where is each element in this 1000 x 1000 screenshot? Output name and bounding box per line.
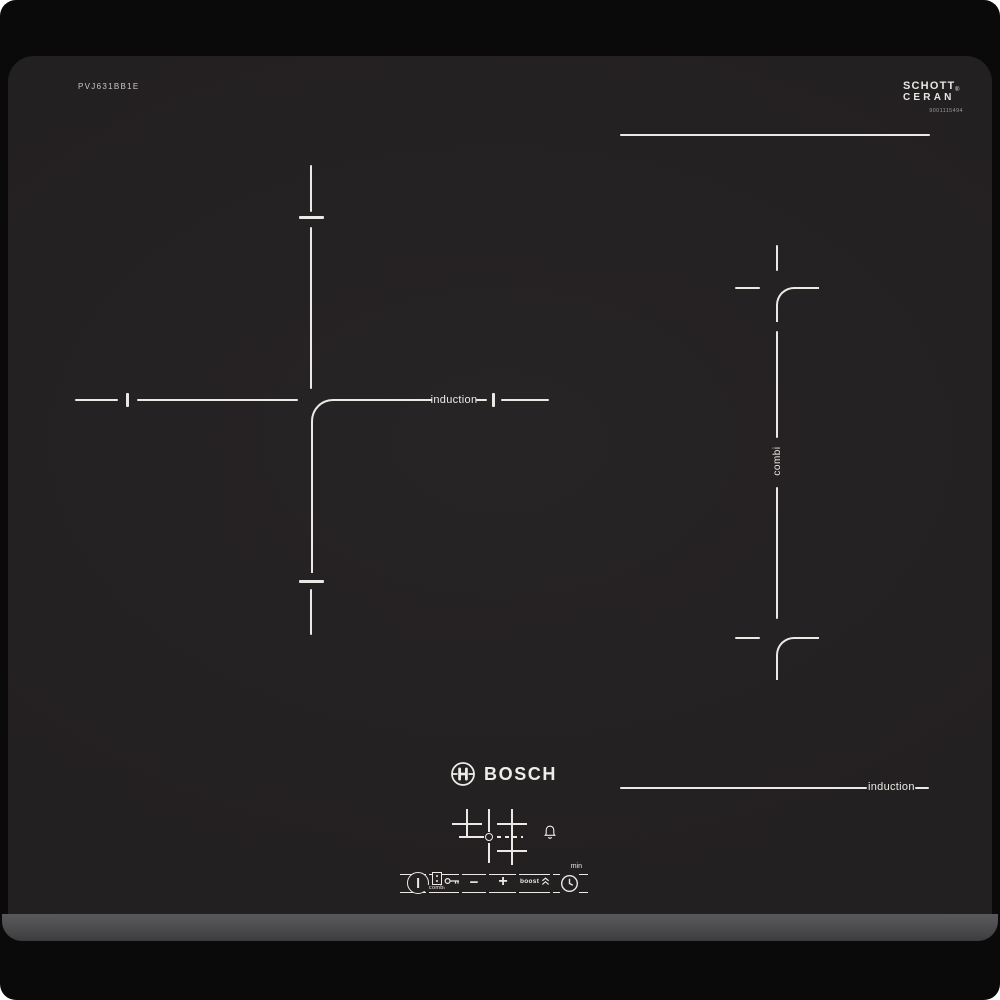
zone-diagram-divider-top xyxy=(488,809,490,832)
combi-zone-top-left-dash xyxy=(735,287,760,289)
boost-button[interactable]: boost xyxy=(518,876,552,886)
bosch-wordmark: BOSCH xyxy=(484,764,557,785)
glass-code: 9001115494 xyxy=(903,108,963,114)
left-zone-horizontal-left-end xyxy=(75,399,118,401)
zone-diagram-topright-cross-v xyxy=(511,809,513,838)
left-zone-label: induction xyxy=(430,394,478,406)
bottom-right-zone-line-end xyxy=(915,787,929,789)
combi-zone-top-tick xyxy=(776,245,778,271)
product-photo: PVJ631BB1E SCHOTT CERAN ® 9001115494 ind… xyxy=(0,0,1000,1000)
combi-zone-vertical-upper xyxy=(776,331,778,438)
child-lock-key-button[interactable] xyxy=(444,876,461,887)
zone-diagram-dashed-line xyxy=(497,836,523,838)
left-zone-vertical-top xyxy=(310,165,312,212)
left-zone-horizontal-right-short xyxy=(476,399,487,401)
timer-button[interactable] xyxy=(560,874,579,893)
left-zone-bottom-tick xyxy=(299,580,324,583)
top-right-zone-line xyxy=(620,134,930,136)
plus-button[interactable]: + xyxy=(492,873,514,891)
minus-button[interactable]: − xyxy=(463,874,485,891)
combi-zone-dot-icon xyxy=(436,880,438,882)
zone-diagram-topleft-cross-v xyxy=(466,809,468,838)
bosch-armature-icon xyxy=(450,761,476,787)
bosch-logo: BOSCH xyxy=(450,761,557,787)
zone-diagram-bottomright-cross-v xyxy=(511,838,513,865)
left-zone-right-tick xyxy=(492,393,495,407)
left-zone-left-tick xyxy=(126,393,129,407)
left-zone-horizontal-left xyxy=(137,399,298,401)
power-icon xyxy=(417,878,419,888)
bottom-right-zone-label: induction xyxy=(868,781,914,793)
left-zone-vertical-upper xyxy=(310,227,312,389)
combi-zone-top-corner xyxy=(776,287,819,322)
bottom-right-zone-line xyxy=(620,787,867,789)
left-zone-top-tick xyxy=(299,216,324,219)
registered-trademark-symbol: ® xyxy=(955,87,959,93)
schott-logo-line2: CERAN xyxy=(903,92,965,103)
left-zone-vertical-bottom xyxy=(310,589,312,635)
combi-zone-bottom-left-dash xyxy=(735,637,760,639)
model-number: PVJ631BB1E xyxy=(78,82,139,91)
schott-ceran-logo: SCHOTT CERAN ® 9001115494 xyxy=(903,80,965,114)
boost-chevrons-icon xyxy=(541,876,550,886)
zone-diagram-indicator-circle xyxy=(485,833,493,841)
zone-diagram-select-line xyxy=(459,836,484,838)
zone-diagram-divider-bottom xyxy=(488,843,490,863)
combi-zone-dot-icon xyxy=(436,875,438,877)
alarm-bell-icon xyxy=(544,825,556,839)
left-zone-horizontal-right-end xyxy=(501,399,549,401)
left-zone-center-corner xyxy=(311,399,432,573)
boost-button-label: boost xyxy=(520,878,539,885)
front-trim-strip xyxy=(2,914,998,941)
combi-button[interactable] xyxy=(432,872,442,885)
timer-minutes-label: min xyxy=(560,863,582,870)
combi-zone-label: combi xyxy=(761,445,793,477)
combi-zone-bottom-corner xyxy=(776,637,819,680)
combi-zone-vertical-lower xyxy=(776,487,778,619)
